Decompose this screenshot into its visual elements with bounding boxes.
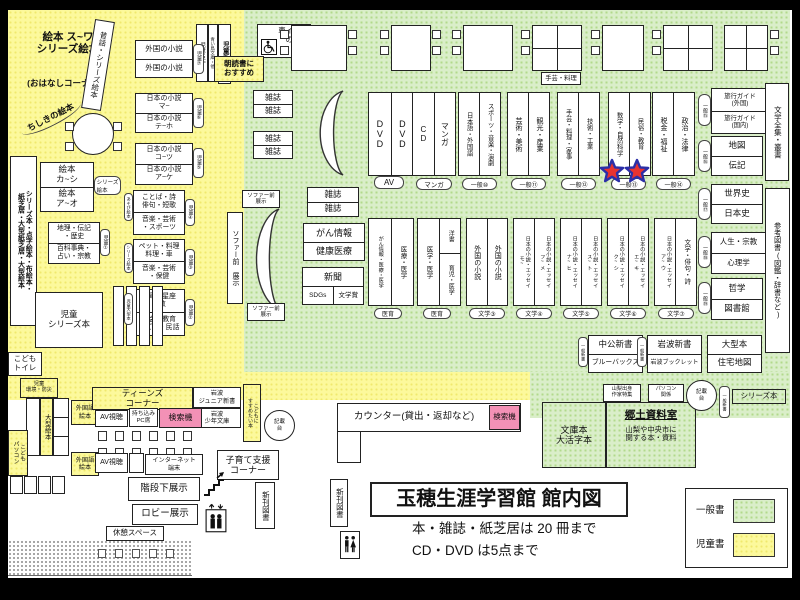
shelf-general-17: 世界史 日本史: [711, 184, 763, 224]
iwanami-junior-shinsho: 岩波 ジュニア新書: [193, 387, 241, 408]
chair: [432, 46, 441, 55]
search-terminal: 検索機: [489, 405, 520, 430]
magazine-rack: 雑誌 雑誌: [253, 131, 293, 159]
shelf-col: 日本の小説・エッセイ モ~: [514, 219, 534, 305]
shelf-cell: [54, 417, 68, 436]
newspaper-shelf: 新聞 SDGs 文学賞: [302, 267, 364, 305]
shelf-col: DVD: [369, 93, 391, 175]
shelf-children-3: ペット・料理 料理・車 音楽・芸術 ・保健: [133, 239, 185, 284]
shelf-cell: [54, 436, 68, 455]
shelf-tab: シリーズ絵本: [124, 243, 133, 273]
internet-terminal: インターネット 端末: [145, 454, 203, 475]
kids-pc: こども パソコン: [8, 430, 28, 476]
shelf-row: 日本の小説 ア~ケ: [136, 164, 192, 185]
shelf-row: 日本の小説 コ~ツ: [136, 144, 192, 164]
legend-row: 一般書: [686, 499, 787, 523]
shelf-label: 文学③: [469, 308, 505, 319]
shelf-col: 外国の小説: [467, 219, 487, 305]
seat: [132, 431, 141, 441]
chair: [280, 46, 289, 55]
shelf-row: 旅行ガイド (外国): [712, 89, 768, 111]
sofa-crescent: [249, 206, 295, 312]
chair: [348, 46, 357, 55]
shelf-tab: シリーズ 絵本: [94, 176, 121, 195]
chair: [380, 30, 389, 39]
rest-space-area: [8, 540, 192, 576]
rest-space-label: 休憩スペース: [106, 526, 164, 541]
chair: [521, 46, 530, 55]
wheelchair-icon: [261, 39, 277, 55]
shelf-label: 文学④: [516, 308, 552, 319]
shelf-tab: 児童④: [185, 199, 195, 226]
shelf-tab: 一般新書: [719, 386, 730, 418]
shelf-col: マンガ: [434, 93, 456, 175]
shelf-tab: 児童⑦: [193, 44, 204, 74]
pc-books-shelf: パソコン 関係: [648, 384, 684, 402]
chair: [280, 30, 289, 39]
shelf-tab: 一般⑮: [698, 94, 711, 126]
shelf-col: 観光・産業: [528, 93, 549, 175]
shelf-row: 日本の小説 マ~: [136, 94, 192, 113]
chair: [113, 122, 122, 131]
shelf-row: 絵本 ア~オ: [41, 187, 93, 212]
shelf-row: 外国の小説: [136, 41, 192, 59]
shelf-row: 百科事典・ 占い・宗教: [49, 243, 99, 264]
shelf-literature-6: 日本の小説・エッセイ ク~シ 日本の小説・エッセイ エ~キ: [607, 218, 649, 306]
shelf-col: 税金・福祉: [653, 93, 673, 175]
shelf-iwanami-shinsho: 岩波新書 岩波ブックレット: [647, 335, 702, 373]
shelf-tab: 一般⑯: [698, 140, 711, 172]
shelf-chuko-shinsho: 中公新書 ブルーバックス: [588, 335, 643, 373]
shelf-row: 雑誌: [254, 132, 292, 145]
chair: [652, 30, 661, 39]
children-series-shelf: 児童 シリーズ本: [35, 292, 103, 348]
round-table: [72, 113, 114, 155]
lobby-display: ロビー展示: [132, 504, 198, 525]
shelf-av: DVD DVD: [368, 92, 414, 176]
reading-table: [663, 25, 713, 71]
childcare-support-corner: 子育て支援 コーナー: [217, 450, 279, 480]
byod-pc-seat: 持ち込み PC席: [129, 408, 158, 427]
shelf-label: 一般⑫: [561, 178, 596, 190]
reference-books-shelf: 参考図書(図鑑・辞書など): [765, 188, 790, 353]
shelf-row: 雑誌: [254, 104, 292, 118]
av-viewing-seat: AV視聴: [95, 453, 128, 473]
shelf-cell: [54, 399, 68, 417]
shelf-row: 岩波新書: [648, 336, 701, 354]
under-stairs-display: 階段下展示: [128, 477, 200, 501]
shelf-strip: [152, 286, 163, 346]
legend-general-label: 一般書: [696, 506, 725, 517]
chair: [452, 30, 461, 39]
shelf-cell: SDGs: [303, 292, 333, 299]
shelf-large-books: 大型本 住宅地図: [707, 335, 762, 373]
shelf-children-5: 日本の小説 コ~ツ 日本の小説 ア~ケ: [135, 143, 193, 185]
shelf-col: DVD: [391, 93, 414, 175]
paperback-large-print-shelf: 文庫本 大活字本: [542, 402, 606, 468]
shelf-row: 音楽・芸術 ・保健: [134, 261, 184, 283]
shelf-label: 文学⑥: [610, 308, 646, 319]
literature-collection-shelf: 文学全集・叢書: [765, 83, 789, 181]
shelf-col: 医療・医学: [391, 219, 414, 305]
chair: [113, 142, 122, 151]
shelf-row: 新聞: [303, 268, 363, 286]
shelf-children-4: ことば・詩 俳句・短歌 音楽・芸術 ・スポーツ: [133, 190, 185, 235]
reading-table: [602, 25, 644, 71]
shelf-row: 中公新書: [589, 336, 642, 354]
chair: [348, 30, 357, 39]
shelf-tab: 一般⑲: [698, 282, 711, 314]
shelf-col: 手芸・料理・家事: [558, 93, 578, 175]
shelf-row: 哲学: [712, 279, 762, 299]
stool: [149, 549, 157, 558]
shelf-tab: あそび絵本: [124, 193, 133, 221]
shelf-row: 音楽・芸術 ・スポーツ: [134, 212, 184, 234]
shelf-tab: 一般⑱: [698, 236, 711, 268]
shelf-row: 住宅地図: [708, 354, 761, 373]
shelf-col: 日本語・外国語: [459, 93, 479, 175]
shelf-row: 雑誌: [254, 145, 292, 159]
shelf-row: 日本の小説 テ~ホ: [136, 113, 192, 133]
series-braille-shelf: シリーズ本・点字絵本・布絵本・ 紙芝居・大型紙芝居・大型絵本: [10, 156, 37, 326]
shelf-general-15: 旅行ガイド (外国) 旅行ガイド (国内): [711, 88, 769, 134]
reading-table: [463, 25, 513, 71]
stool: [132, 549, 140, 558]
shelf-row: 大型本: [708, 336, 761, 354]
shelf-row: 心理学: [712, 253, 765, 274]
health-info-shelf: がん情報 健康医療: [303, 223, 365, 261]
shelf-tab: 一般新書: [637, 337, 647, 367]
shelf-cell: 育児・医学: [440, 253, 461, 305]
big-picture-books-shelf: 大型絵本: [40, 398, 53, 456]
shelf-general-10: 日本語・外国語 スポーツ・音楽・演劇: [458, 92, 501, 176]
seat: [166, 431, 175, 441]
shelf-col: CD: [413, 93, 434, 175]
library-floor-map: 絵本 ス~ワ シリーズ絵本 (おはなしコーナー) 昔話・シリーズ絵本 ちしきの絵…: [8, 10, 792, 578]
shelf-tab: 児童③: [185, 249, 195, 276]
magazine-rack: 雑誌 雑誌: [253, 90, 293, 118]
shelf-col: 日本の小説・エッセイ フ~メ: [534, 219, 555, 305]
legend-general-swatch: [733, 499, 775, 523]
shelf-literature-7: 日本の小説・エッセイ ア~ウ 文学・俳句・詩: [654, 218, 697, 306]
shelf-row: 旅行ガイド (国内): [712, 111, 768, 134]
shelf-row: 日本史: [712, 204, 762, 224]
shelf-box: [129, 453, 144, 473]
shelf-literature-3: 外国の小説 外国の小説: [466, 218, 508, 306]
shelf-strip: [26, 398, 40, 456]
counter-leg: [337, 431, 361, 463]
shelf-box: [38, 476, 51, 494]
shelf-row: 人生・宗教: [712, 233, 765, 253]
seat: [98, 431, 107, 441]
chair: [521, 30, 530, 39]
stool: [115, 549, 123, 558]
shelf-label: 医育: [374, 308, 402, 319]
sofa-front-display: ソファー前 展示: [242, 190, 280, 208]
reading-table: [724, 25, 768, 71]
shelf-strip: [139, 286, 150, 346]
shelf-picture-books: 絵本 カ~シ 絵本 ア~オ: [40, 162, 94, 212]
reading-table: [391, 25, 431, 71]
shelf-tab: 児童⑤: [193, 148, 204, 178]
seat: [115, 431, 124, 441]
shelf-general-11: 芸術・美術 観光・産業: [507, 92, 550, 176]
shelf-row: 外国の小説: [136, 59, 192, 78]
shelf-literature-4: 日本の小説・エッセイ モ~ 日本の小説・エッセイ フ~メ: [513, 218, 555, 306]
chair: [65, 122, 74, 131]
shelf-children-7: 外国の小説 外国の小説: [135, 40, 193, 78]
loan-limit-books: 本・雑誌・紙芝居は 20 冊まで: [412, 520, 636, 538]
shelf-col: 外国の小説: [487, 219, 508, 305]
shelf-col: 医学・医学: [418, 219, 439, 305]
local-history-room: 郷土資料室 山梨や中央市に 関する本・資料: [606, 402, 696, 468]
writing-stand: 記載 台: [264, 410, 295, 441]
legend-children-label: 児童書: [696, 540, 725, 551]
legend-row: 児童書: [686, 533, 787, 557]
shelf-col: 日本の小説・エッセイ ア~ウ: [655, 219, 675, 305]
av-viewing-seat: AV視聴: [95, 410, 128, 427]
shelf-row: 雑誌: [254, 91, 292, 104]
shelf-row: 雑誌: [308, 188, 358, 202]
chair: [65, 142, 74, 151]
shelf-col: 日本の小説・エッセイ ナ~ヒ: [561, 219, 581, 305]
chair: [770, 30, 779, 39]
shelf-label: 医育: [423, 308, 451, 319]
stool: [166, 549, 174, 558]
chair: [652, 46, 661, 55]
shelf-general-16: 地図 伝記: [711, 136, 763, 176]
shelf-col: 日本の小説・エッセイ エ~キ: [628, 219, 649, 305]
shelf-children-1: 地理・伝記 ・歴史 百科事典・ 占い・宗教: [48, 222, 100, 264]
shelf-row: ブルーバックス: [589, 354, 642, 373]
shelf-tab: 児童②: [185, 299, 195, 326]
shelf-label: 一般⑩: [462, 178, 497, 190]
seat: [149, 431, 158, 441]
shelf-row: 伝記: [712, 156, 762, 176]
loan-limit-av: CD・DVD は5点まで: [412, 542, 612, 560]
shelf-cell: 文学賞: [333, 287, 364, 305]
shelf-row: ことば・詩 俳句・短歌: [134, 191, 184, 212]
reading-table: [532, 25, 582, 71]
yamanashi-authors-shelf: 山梨出身 作家特集: [603, 384, 641, 402]
chair: [380, 46, 389, 55]
shelf-row: 雑誌: [308, 202, 358, 217]
craft-cooking-sign: 手芸・料理: [541, 72, 581, 85]
local-history-room-title: 郷土資料室: [625, 409, 678, 421]
sofa-crescent: [311, 88, 359, 178]
shelf-row: SDGs 文学賞: [303, 286, 363, 305]
shelf-row: 図書館: [712, 299, 762, 320]
sofa-front-display: ソファー前 展示: [247, 303, 285, 321]
elevator-icon: [205, 503, 227, 533]
series-books-shelf: シリーズ本: [732, 389, 786, 404]
shelf-row: 健康医療: [304, 242, 364, 261]
magazine-rack: 雑誌 雑誌: [307, 187, 359, 217]
seat: [183, 431, 192, 441]
shelf-box: [10, 476, 23, 494]
shelf-col: 文学・俳句・詩: [675, 219, 696, 305]
shelf-general-19: 哲学 図書館: [711, 278, 763, 320]
shelf-row: がん情報: [304, 224, 364, 242]
shelf-label: 一般⑪: [511, 178, 546, 190]
shelf-strip: [53, 398, 69, 456]
shelf-box: [24, 476, 37, 494]
children-zone-strip: [244, 372, 544, 400]
restroom-icon: [340, 531, 360, 559]
shelf-general-12: 手芸・料理・家事 技術・工業: [557, 92, 600, 176]
shelf-tab: 児童①: [100, 229, 110, 256]
shelf-medical-1: がん情報・医療・医学 医療・医学: [368, 218, 414, 306]
chair: [770, 46, 779, 55]
shelf-literature-5: 日本の小説・エッセイ ナ~ヒ 日本の小説・エッセイ ス~ト: [560, 218, 602, 306]
shelf-children-6: 日本の小説 マ~ 日本の小説 テ~ホ: [135, 93, 193, 133]
local-history-room-desc: 山梨や中央市に 関する本・資料: [625, 426, 676, 443]
chair: [452, 46, 461, 55]
star-markers-icon: [599, 157, 653, 187]
shelf-label: マンガ: [416, 178, 452, 190]
shelf-label: 文学⑤: [563, 308, 599, 319]
shelf-col: 芸術・美術: [508, 93, 528, 175]
shelf-row: 世界史: [712, 185, 762, 204]
shelf-box: [52, 476, 65, 494]
new-books-shelf: 新刊図書: [255, 482, 275, 529]
new-books-shelf: 新刊図書: [330, 479, 348, 527]
shelf-cd-manga: CD マンガ: [412, 92, 456, 176]
shelf-general-14: 税金・福祉 政治・法律: [652, 92, 695, 176]
kids-toilet: こども トイレ: [8, 352, 42, 376]
chair: [591, 30, 600, 39]
shelf-col: 日本の小説・エッセイ ク~シ: [608, 219, 628, 305]
shelf-general-18: 人生・宗教 心理学: [711, 232, 766, 274]
stairs-icon: [202, 471, 226, 497]
shelf-col: 技術・工業: [578, 93, 599, 175]
shelf-row: ペット・料理 料理・車: [134, 240, 184, 261]
shelf-tab: 一般⑰: [698, 188, 711, 220]
teens-corner-header: ティーンズ コーナー: [92, 387, 193, 410]
shelf-col: 日本の小説・エッセイ ス~ト: [581, 219, 602, 305]
stool: [98, 549, 106, 558]
floor-map-frame: 絵本 ス~ワ シリーズ絵本 (おはなしコーナー) 昔話・シリーズ絵本 ちしきの絵…: [0, 0, 800, 600]
chair: [432, 30, 441, 39]
search-terminal: 検索機: [159, 408, 202, 428]
shelf-label: 一般⑭: [656, 178, 691, 190]
shelf-label: AV: [374, 176, 404, 189]
shelf-col: 政治・法律: [673, 93, 694, 175]
shelf-col: スポーツ・音楽・演劇: [479, 93, 500, 175]
shelf-cell: 洋書: [446, 219, 453, 253]
shelf-strip: [113, 286, 124, 346]
children-environment-shelf: 児童 環境・防災: [20, 378, 58, 398]
shelf-label: 文学⑦: [658, 308, 694, 319]
writing-stand: 記載 台: [686, 380, 717, 411]
shelf-tab: 児童大型本: [124, 293, 133, 325]
shelf-tab: 一般新書: [578, 337, 588, 367]
legend-children-swatch: [733, 533, 775, 557]
shelf-medical-2: 医学・医学 洋書 育児・医学: [417, 218, 461, 306]
shelf-row: 絵本 カ~シ: [41, 163, 93, 187]
shelf-col: がん情報・医療・医学: [369, 219, 391, 305]
shelf-row: 地図: [712, 137, 762, 156]
sofa-front-display: ソファー前 展示: [227, 212, 243, 304]
recommended-for-kids-shelf: こどもに すすめたい本: [243, 384, 261, 442]
shelf-row: 岩波ブックレット: [648, 354, 701, 373]
shelf-tab: 児童⑥: [193, 98, 204, 128]
map-title: 玉穂生涯学習館 館内図: [370, 482, 628, 517]
reading-table: [291, 25, 347, 71]
legend: 一般書 児童書: [685, 488, 788, 568]
shelf-col: 洋書 育児・医学: [439, 219, 461, 305]
morning-reading-sign: 朝読書に おすすめ: [214, 56, 264, 82]
chair: [591, 46, 600, 55]
shelf-row: 地理・伝記 ・歴史: [49, 223, 99, 243]
